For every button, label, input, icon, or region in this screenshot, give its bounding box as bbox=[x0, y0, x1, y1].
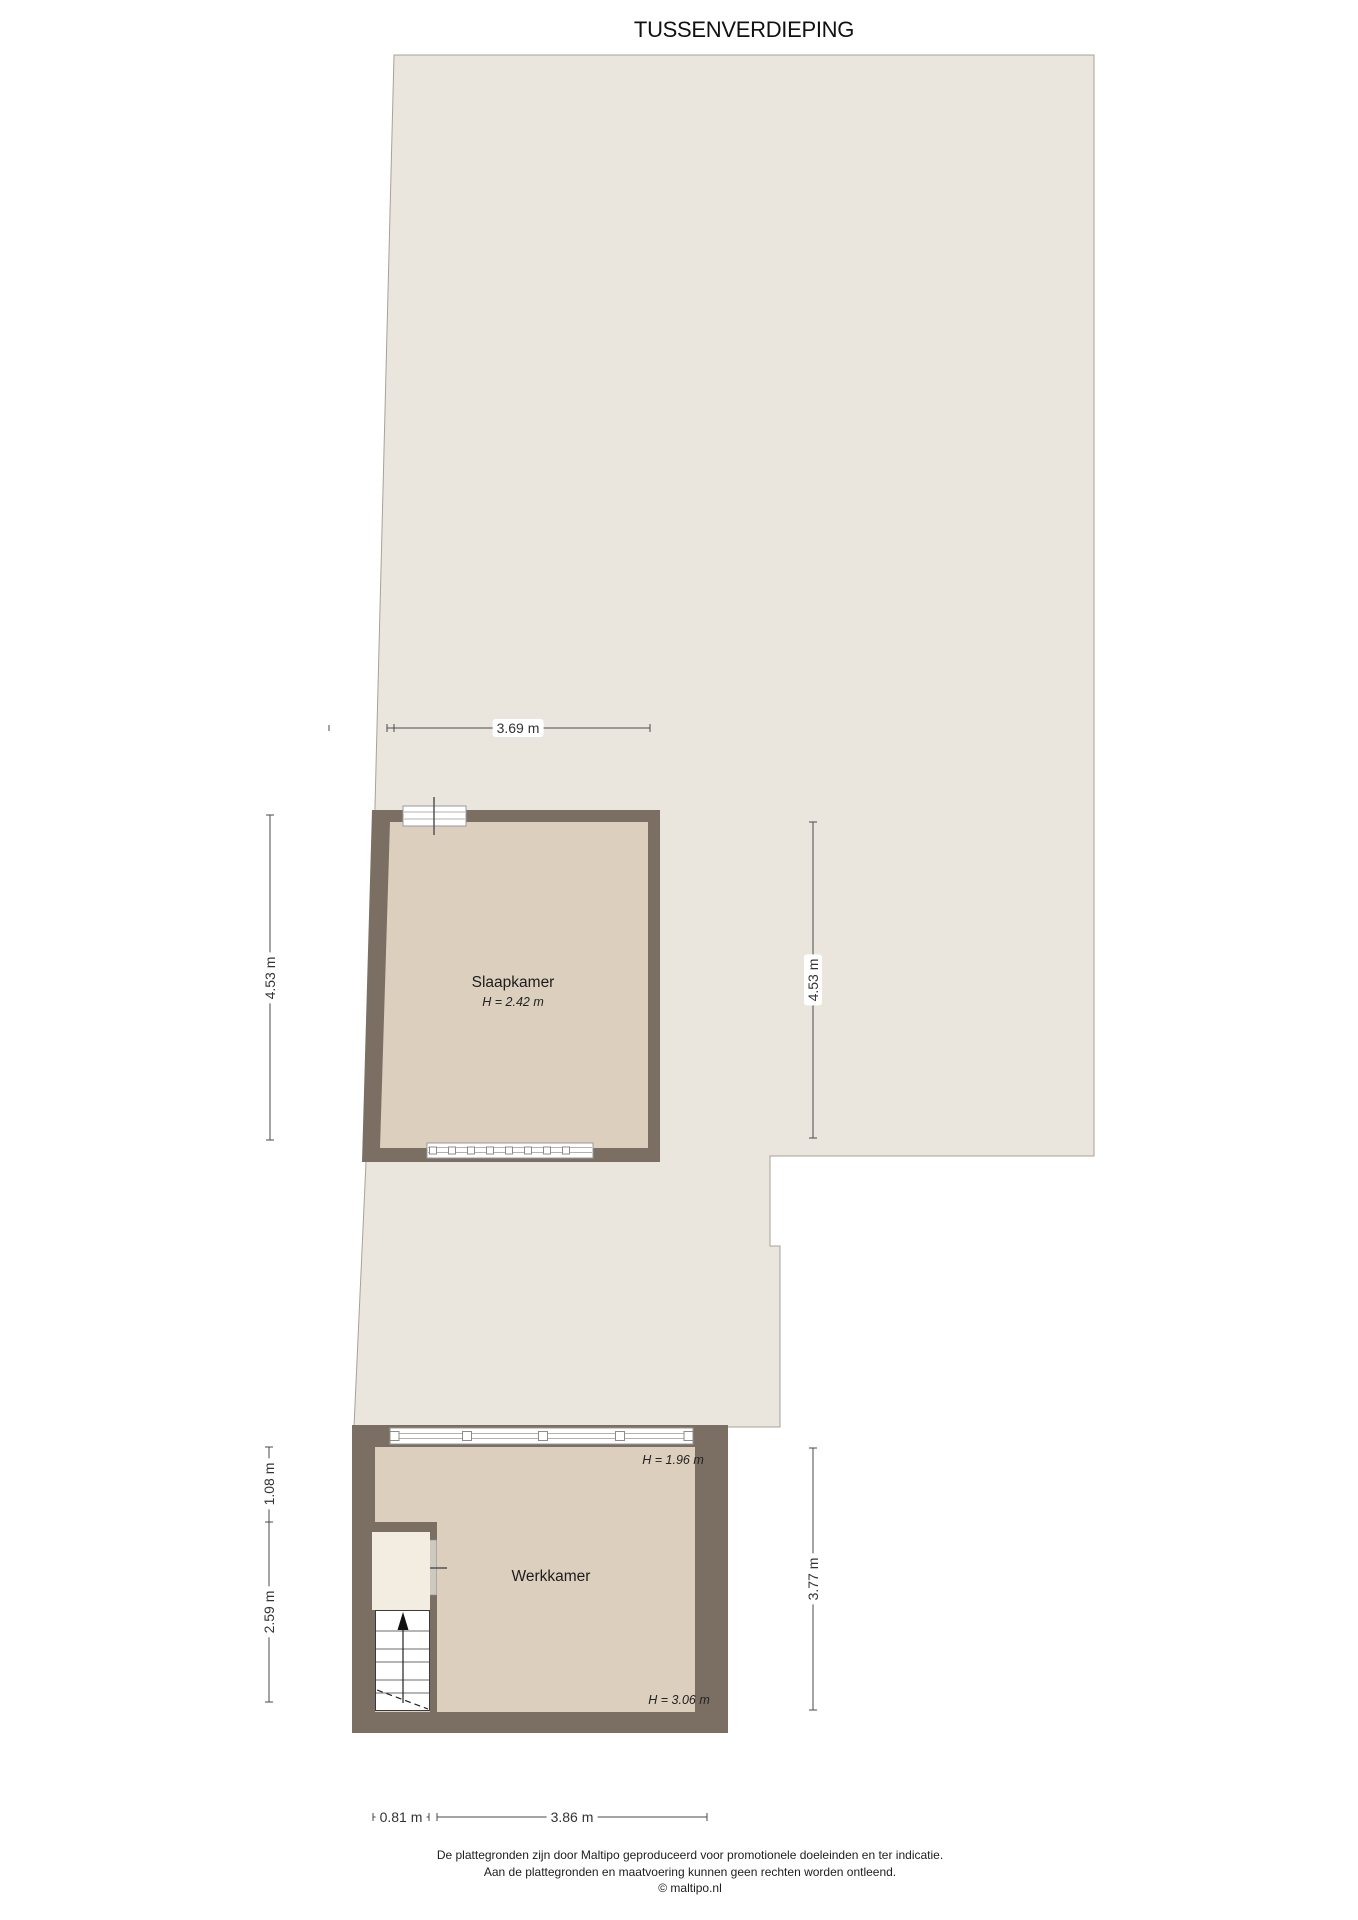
stair-enclosure bbox=[372, 1522, 447, 1712]
dim-label-top-width: 3.69 m bbox=[493, 719, 544, 737]
staircase bbox=[376, 1611, 430, 1711]
stair-landing bbox=[372, 1532, 430, 1610]
dim-label-left-lower: 2.59 m bbox=[260, 1587, 278, 1638]
height-label-slaapkamer: H = 2.42 m bbox=[482, 993, 544, 1011]
floorplan-page: TUSSENVERDIEPING 3.69 m 4.53 m 4.53 m 1.… bbox=[0, 0, 1358, 1920]
stair-top-wall bbox=[372, 1522, 437, 1532]
open-floor-area bbox=[354, 55, 1094, 1427]
dim-label-bottom-right: 3.86 m bbox=[547, 1808, 598, 1826]
werkkamer-top-window bbox=[390, 1428, 693, 1444]
dim-label-left-mid: 1.08 m bbox=[260, 1459, 278, 1510]
room-label-slaapkamer: Slaapkamer bbox=[472, 974, 555, 992]
page-title: TUSSENVERDIEPING bbox=[634, 21, 854, 39]
disclaimer-line-1: De plattegronden zijn door Maltipo gepro… bbox=[437, 1847, 943, 1864]
room-label-werkkamer: Werkkamer bbox=[512, 1568, 591, 1586]
disclaimer: De plattegronden zijn door Maltipo gepro… bbox=[437, 1847, 943, 1897]
slaapkamer-bottom-window bbox=[427, 1143, 593, 1158]
dim-label-right-lower: 3.77 m bbox=[804, 1554, 822, 1605]
dim-label-right-upper: 4.53 m bbox=[804, 955, 822, 1006]
disclaimer-line-2: Aan de plattegronden en maatvoering kunn… bbox=[437, 1864, 943, 1881]
height-label-werkkamer-bottom: H = 3.06 m bbox=[648, 1691, 710, 1709]
floorplan-drawing bbox=[0, 0, 1358, 1920]
stair-right-wall bbox=[430, 1595, 437, 1712]
disclaimer-line-3: © maltipo.nl bbox=[437, 1880, 943, 1897]
dim-label-left-upper: 4.53 m bbox=[261, 953, 279, 1004]
dim-label-bottom-left: 0.81 m bbox=[376, 1808, 427, 1826]
stair-wall-stub bbox=[430, 1532, 437, 1540]
height-label-werkkamer-top: H = 1.96 m bbox=[642, 1451, 704, 1469]
